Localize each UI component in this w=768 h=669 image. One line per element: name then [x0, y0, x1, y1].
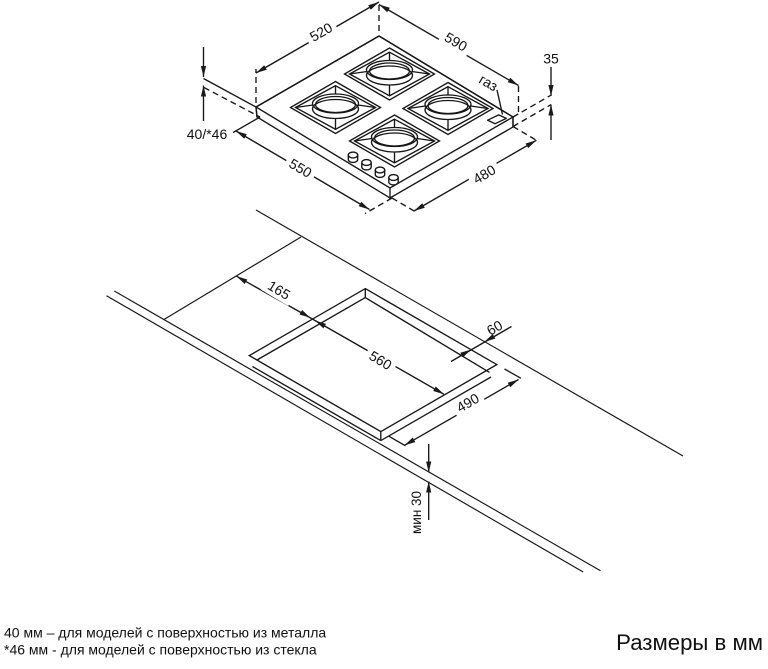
svg-text:мин 30: мин 30	[409, 491, 424, 534]
svg-text:40 мм – для моделей с поверхно: 40 мм – для моделей с поверхностью из ме…	[4, 625, 326, 641]
svg-text:Размеры в мм: Размеры в мм	[616, 630, 763, 655]
svg-text:*46 мм - для моделей с поверхн: *46 мм - для моделей с поверхностью из с…	[4, 642, 317, 658]
svg-text:35: 35	[543, 51, 559, 67]
svg-text:40/*46: 40/*46	[187, 126, 228, 142]
